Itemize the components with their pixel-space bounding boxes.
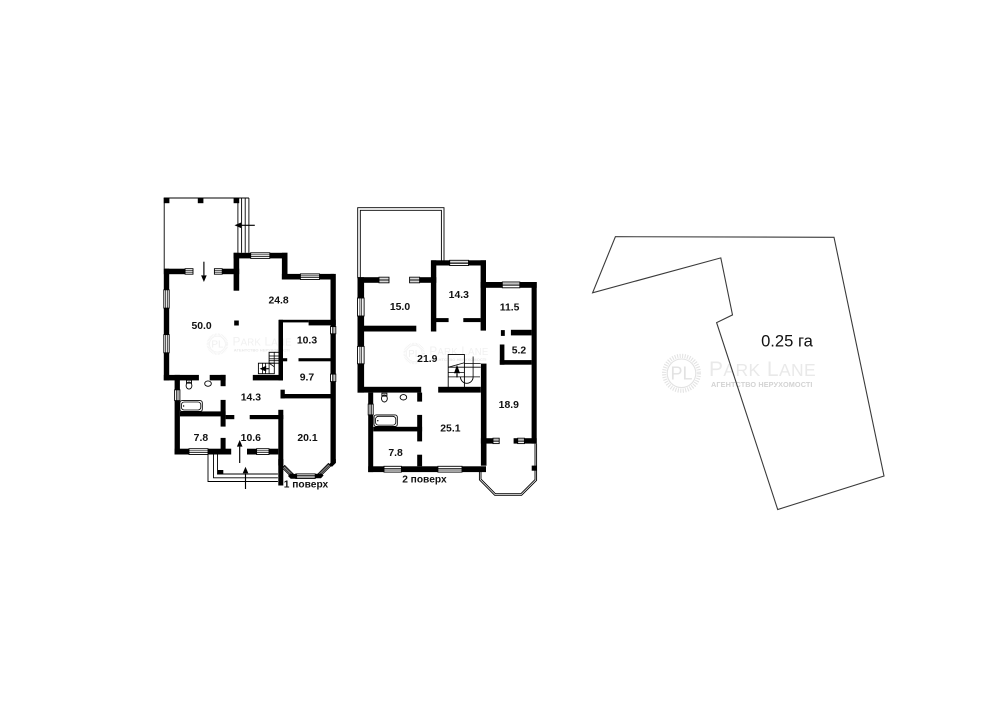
svg-text:14.3: 14.3 [241,393,261,404]
svg-text:PARK LANE: PARK LANE [233,336,292,349]
svg-text:20.1: 20.1 [297,433,317,444]
svg-text:10.6: 10.6 [241,433,261,444]
svg-text:18.9: 18.9 [499,400,519,411]
svg-text:25.1: 25.1 [440,424,460,435]
svg-text:5.2: 5.2 [512,345,527,356]
svg-text:2 поверх: 2 поверх [402,474,447,485]
svg-text:50.0: 50.0 [191,321,211,332]
svg-text:PARK LANE: PARK LANE [709,358,816,381]
svg-text:10.3: 10.3 [297,336,317,347]
svg-text:0.25 га: 0.25 га [761,331,814,350]
svg-text:АГЕНТСТВО НЕРУХОМОСТІ: АГЕНТСТВО НЕРУХОМОСТІ [431,357,487,362]
svg-text:АГЕНТСТВО НЕРУХОМОСТІ: АГЕНТСТВО НЕРУХОМОСТІ [711,380,813,389]
svg-text:15.0: 15.0 [390,302,410,313]
svg-text:PL: PL [670,364,692,384]
svg-text:14.3: 14.3 [449,290,469,301]
svg-text:11.5: 11.5 [500,303,520,314]
svg-text:9.7: 9.7 [300,373,315,384]
svg-text:7.8: 7.8 [194,433,209,444]
svg-text:21.9: 21.9 [417,354,437,365]
svg-text:7.8: 7.8 [388,448,403,459]
svg-text:PARK LANE: PARK LANE [429,345,488,358]
svg-text:PL: PL [211,340,224,351]
svg-text:1 поверх: 1 поверх [284,480,329,491]
svg-text:24.8: 24.8 [268,296,288,307]
